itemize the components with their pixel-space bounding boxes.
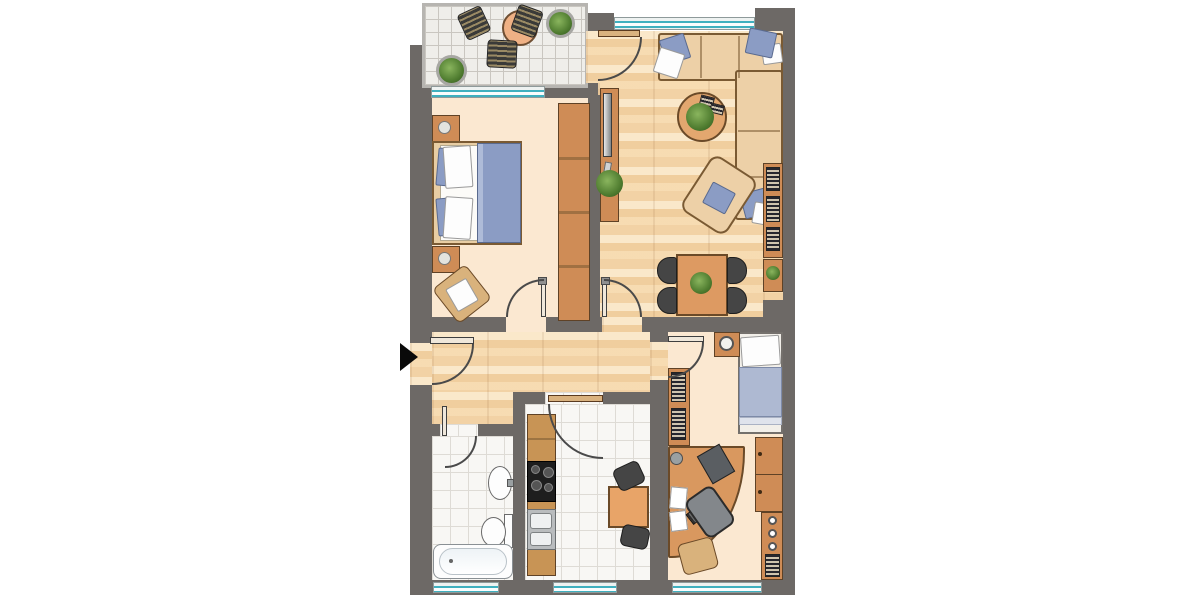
stove-burner [543, 467, 554, 478]
bathtub-drain [449, 559, 453, 563]
bedroom-window [431, 86, 545, 98]
dining-chair [657, 287, 677, 314]
single-bed-blanket-fold [739, 417, 782, 425]
desk-lamp [670, 452, 683, 465]
office-nightstand-lamp [719, 336, 734, 351]
sofa-seam [738, 36, 740, 78]
dining-chair [657, 257, 677, 284]
office-cabinet-upper [755, 437, 783, 475]
wall-left-lower [410, 385, 432, 595]
sofa-pillow-blue [745, 27, 778, 58]
wall-main-horizontal-c [642, 317, 763, 332]
wall-bathroom-top-b [478, 424, 513, 436]
shelf-knob [768, 529, 777, 538]
kitchen-sink-basin [530, 513, 552, 529]
wall-bathroom-top-a [430, 424, 440, 436]
kitchen-counter-divider [528, 438, 555, 440]
bookshelf-books [766, 196, 780, 222]
wardrobe-divider [559, 157, 589, 160]
living-floor-plant [596, 170, 623, 197]
balcony-door-leaf [598, 30, 640, 37]
tv [603, 93, 612, 157]
bookshelf-books [766, 227, 780, 251]
cabinet-knob [758, 490, 762, 494]
wall-kitchen-top-a [513, 392, 545, 404]
stove-burner [544, 483, 553, 492]
bookshelf-books [766, 167, 780, 191]
wardrobe-divider [559, 265, 589, 268]
single-bed-pillow [740, 335, 781, 368]
coffee-table-plant [686, 103, 714, 131]
office-bookshelf-books [671, 408, 686, 440]
nightstand-lamp [438, 121, 451, 134]
kitchen-table [608, 486, 649, 528]
bed-blanket [477, 143, 521, 243]
wall-kitchen-top-b [603, 392, 650, 404]
wall-bath-kitchen [513, 392, 525, 580]
shelf-knob [768, 542, 777, 551]
kitchen-door-leaf [548, 395, 603, 402]
washbasin-tap [507, 479, 514, 487]
living-doorway [602, 317, 642, 332]
bathroom-door-leaf [442, 406, 447, 436]
kitchen-window [553, 582, 617, 593]
wall-kitchen-office-b [650, 380, 668, 580]
wall-kitchen-office-a [650, 332, 668, 342]
single-bed-blanket [739, 367, 782, 417]
sofa-seam [700, 36, 702, 78]
wall-living-corner-block [763, 300, 795, 332]
bedroom-doorway [506, 317, 546, 332]
balcony-plant-right [546, 9, 575, 38]
floor-plan-canvas [0, 0, 1200, 600]
wall-balcony-door-pier [588, 83, 598, 97]
wardrobe-divider [559, 211, 589, 214]
entrance-arrow-icon [400, 343, 418, 371]
kitchen-sink-basin [530, 532, 552, 546]
office-door-threshold [650, 342, 668, 380]
shelf-knob [768, 516, 777, 525]
bathroom-window [433, 582, 499, 593]
sofa-seam [738, 130, 780, 132]
balcony-plant-left [436, 55, 467, 86]
cabinet-knob [758, 452, 762, 456]
stove-burner [531, 480, 542, 491]
balcony-chair-bottom [486, 39, 517, 69]
side-table-plant [766, 266, 780, 280]
nightstand-lamp [438, 252, 451, 265]
shelf-items [765, 554, 780, 577]
dining-table-plant [690, 272, 712, 294]
living-room-window [614, 17, 755, 30]
entrance-door-leaf [430, 337, 474, 344]
bed-pillow-white [443, 145, 474, 189]
bed-pillow-white [443, 196, 474, 240]
office-window [672, 582, 762, 593]
toilet-bowl [481, 517, 506, 547]
stove-burner [531, 465, 540, 474]
